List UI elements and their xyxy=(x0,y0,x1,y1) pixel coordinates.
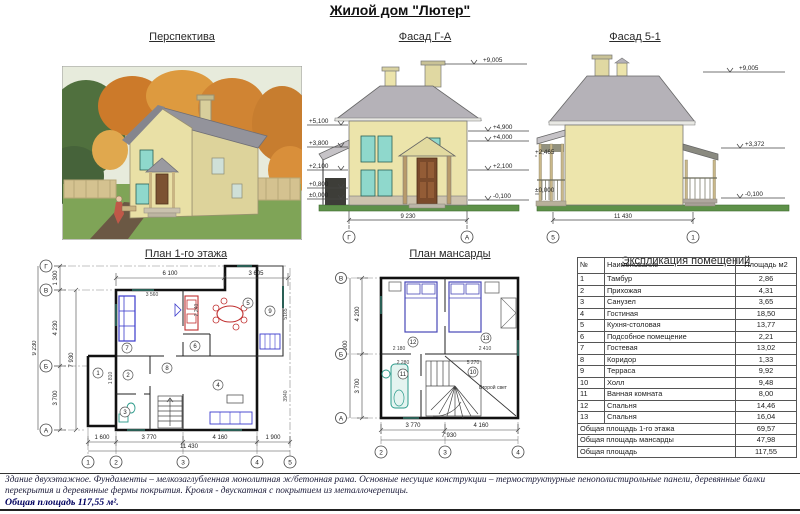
dim-label: 1 300 xyxy=(53,270,59,286)
axis-label: А xyxy=(44,428,49,435)
axis-label: 4 xyxy=(516,450,520,457)
elev-mark: -0,100 xyxy=(493,193,511,200)
plan-mansard-drawing: 12 13 11 10 Второй свет 3 770 4 160 7 93… xyxy=(333,246,578,474)
dim-label: 11 430 xyxy=(180,444,199,450)
table-row: 10Холл9,48 xyxy=(578,377,797,389)
dim-label: 3 700 xyxy=(53,390,59,406)
footer-notes: Здание двухэтажное. Фундаменты – мелкоза… xyxy=(0,473,800,509)
room-schedule: № Наименование Площадь м2 1Тамбур2,86 2П… xyxy=(577,252,795,458)
dim-label: 7 930 xyxy=(69,352,75,368)
dim-label: 5 270 xyxy=(467,360,480,366)
dim-label: 6 100 xyxy=(162,271,178,277)
footer-description-line1: Здание двухэтажное. Фундаменты – мелкоза… xyxy=(5,475,795,486)
room-number: 11 xyxy=(400,372,407,378)
table-row: 5Кухня-столовая13,77 xyxy=(578,320,797,332)
col-header-name: Наименование xyxy=(605,258,736,274)
dim-label: 3 560 xyxy=(146,292,159,298)
ground-line xyxy=(537,205,789,211)
stairs xyxy=(158,396,182,428)
table-row: 6Подсобное помещение2,21 xyxy=(578,331,797,343)
dim-label: 4 200 xyxy=(355,306,361,322)
axis-label: 5 xyxy=(551,235,555,242)
dim-label: 3 605 xyxy=(248,271,264,277)
drawing-sheet: Жилой дом "Лютер" Перспектива Фасад Г-А … xyxy=(0,0,800,514)
table-row: 8Коридор1,33 xyxy=(578,354,797,366)
facade-ga-drawing: +9,005 +5,100 +3,800 +2,100 +0,800 ±0,00… xyxy=(305,52,535,248)
dim-lines xyxy=(38,264,292,451)
footer-total-area: Общая площадь 117,55 м². xyxy=(5,497,795,509)
dim-label: 3 770 xyxy=(405,423,421,429)
elev-mark: +2,465 xyxy=(535,149,555,156)
perspective-rendering xyxy=(62,66,302,240)
room-number: 13 xyxy=(483,336,490,342)
room-schedule-table: № Наименование Площадь м2 1Тамбур2,86 2П… xyxy=(577,257,797,458)
dim-label: 9 230 xyxy=(32,340,38,356)
axis-label: Г xyxy=(347,235,351,242)
sheet-title: Жилой дом "Лютер" xyxy=(0,2,800,18)
dim-label: 2 180 xyxy=(393,346,406,352)
dim-label: 9 230 xyxy=(400,214,416,220)
axis-label: 2 xyxy=(379,450,383,457)
facade-ga-house xyxy=(319,61,481,208)
dim-label: 2 410 xyxy=(479,346,492,352)
dim-label: 7 930 xyxy=(441,433,457,439)
axis-label: 3 xyxy=(443,450,447,457)
table-row: 3Санузел3,65 xyxy=(578,297,797,309)
table-total-row: Общая площадь117,55 xyxy=(578,446,797,458)
elev-mark: -0,100 xyxy=(745,191,763,198)
table-row: 1Тамбур2,86 xyxy=(578,274,797,286)
elev-mark: +9,005 xyxy=(739,65,759,72)
col-header-num: № xyxy=(578,258,605,274)
elev-mark: +9,005 xyxy=(483,57,503,64)
elev-mark: +5,100 xyxy=(309,118,329,125)
axis-label: В xyxy=(339,276,343,283)
axis-label: 1 xyxy=(86,460,90,467)
dim-lines xyxy=(350,276,520,440)
dim-label: 3 770 xyxy=(141,435,157,441)
dim-label: 3940 xyxy=(283,390,289,401)
interior-walls xyxy=(116,290,257,430)
elev-mark: +4,000 xyxy=(493,134,513,141)
elev-mark: +2,100 xyxy=(309,163,329,170)
axis-label: 4 xyxy=(255,460,259,467)
axis-label: Б xyxy=(44,364,48,371)
elev-mark: ±0,000 xyxy=(309,192,329,199)
axis-lines xyxy=(337,278,518,446)
elev-mark: +3,800 xyxy=(309,140,329,147)
dim-label: 1 900 xyxy=(265,435,281,441)
dim-label: 4 160 xyxy=(473,423,489,429)
table-row: 2Прихожая4,31 xyxy=(578,285,797,297)
footer-description-line2: перекрытия и деревянные фермы покрытия. … xyxy=(5,486,795,497)
axis-label: 2 xyxy=(114,460,118,467)
facade-ga-title: Фасад Г-А xyxy=(330,31,520,43)
facade-51-drawing: +9,005 +3,372 -0,100 +2,465 ±0,000 11 43… xyxy=(535,52,800,248)
axis-label: 5 xyxy=(288,460,292,467)
dim-label: 1 600 xyxy=(94,435,110,441)
table-row: 11Ванная комната8,00 xyxy=(578,389,797,401)
room-numbers: 1 2 3 4 5 6 7 8 9 xyxy=(93,298,275,417)
plan1-drawing: 1 2 3 4 5 6 7 8 9 xyxy=(32,246,317,474)
outer-walls xyxy=(88,266,257,430)
elev-mark: +3,372 xyxy=(745,141,765,148)
perspective-title: Перспектива xyxy=(62,31,302,43)
table-row: 9Терраса9,92 xyxy=(578,366,797,378)
facade-51-house xyxy=(536,55,718,206)
axis-label: 3 xyxy=(181,460,185,467)
dim-label: 3 700 xyxy=(355,378,361,394)
dim-label: 2 240 xyxy=(194,304,200,317)
table-row: 4Гостиная18,50 xyxy=(578,308,797,320)
elev-mark: +0,800 xyxy=(309,181,329,188)
table-row: 7Гостевая13,02 xyxy=(578,343,797,355)
axis-label: В xyxy=(44,288,48,295)
second-light-note: Второй свет xyxy=(479,384,508,391)
table-row: 13Спальня16,04 xyxy=(578,412,797,424)
axis-lines xyxy=(40,266,290,456)
elev-mark: ±0,000 xyxy=(535,187,555,194)
room-number: 12 xyxy=(410,340,417,346)
table-row: 12Спальня14,46 xyxy=(578,400,797,412)
axis-label: А xyxy=(465,235,470,242)
dim-label: 4 230 xyxy=(53,320,59,336)
table-total-row: Общая площадь 1-го этажа69,57 xyxy=(578,423,797,435)
table-header-row: № Наименование Площадь м2 xyxy=(578,258,797,274)
table-total-row: Общая площадь мансарды47,98 xyxy=(578,435,797,447)
sheet-bottom-border xyxy=(0,509,800,511)
col-header-area: Площадь м2 xyxy=(736,258,797,274)
axis-label: Г xyxy=(44,264,48,271)
dim-label: 4 160 xyxy=(212,435,228,441)
facade-51-title: Фасад 5-1 xyxy=(540,31,730,43)
axis-label: А xyxy=(339,416,344,423)
dim-label: 2 280 xyxy=(397,360,410,366)
elev-mark: +2,100 xyxy=(493,163,513,170)
axis-label: 1 xyxy=(691,235,695,242)
axis-label: Б xyxy=(339,352,343,359)
dim-label: 5165 xyxy=(283,308,289,319)
dim-label: 1 810 xyxy=(108,372,114,385)
elev-mark: +4,900 xyxy=(493,124,513,131)
dim-label: 11 430 xyxy=(614,214,633,220)
room-number: 10 xyxy=(470,370,477,376)
